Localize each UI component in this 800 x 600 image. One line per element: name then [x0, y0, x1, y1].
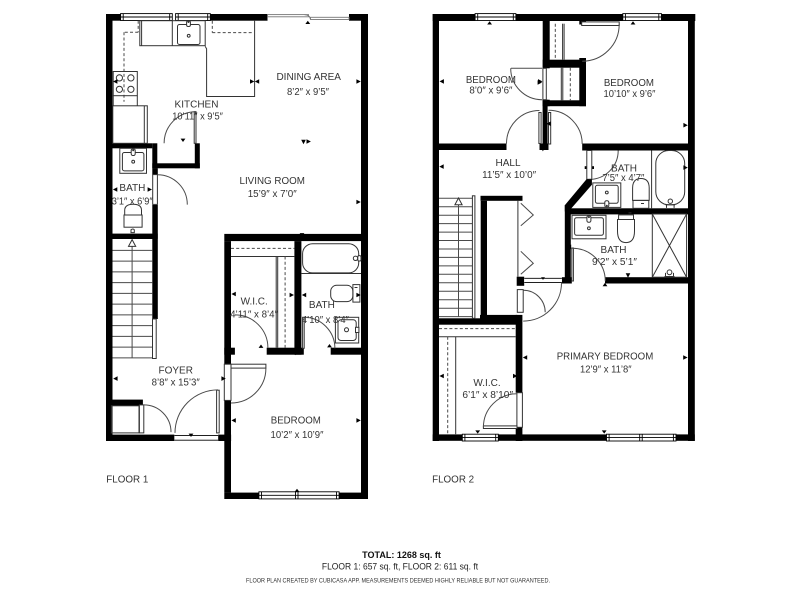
svg-text:HALL: HALL	[495, 158, 520, 169]
svg-text:7’5″ x 4’7″: 7’5″ x 4’7″	[602, 173, 644, 184]
svg-text:PRIMARY BEDROOM: PRIMARY BEDROOM	[557, 351, 654, 362]
svg-text:9’2″ x 5’1″: 9’2″ x 5’1″	[592, 257, 637, 268]
svg-text:FLOOR PLAN CREATED BY CUBICASA: FLOOR PLAN CREATED BY CUBICASA APP. MEAS…	[246, 578, 550, 585]
svg-text:BATH: BATH	[309, 300, 335, 311]
svg-text:KITCHEN: KITCHEN	[175, 100, 219, 111]
svg-text:FOYER: FOYER	[158, 365, 192, 376]
svg-text:10’11″ x 9’5″: 10’11″ x 9’5″	[172, 112, 223, 123]
svg-text:BATH: BATH	[601, 245, 627, 256]
svg-text:FLOOR 1: 657 sq. ft, FLOOR 2:: FLOOR 1: 657 sq. ft, FLOOR 2: 611 sq. ft	[322, 561, 479, 571]
svg-text:8’8″ x 15’3″: 8’8″ x 15’3″	[152, 378, 201, 389]
svg-text:4’11″ x 8’4″: 4’11″ x 8’4″	[230, 309, 278, 320]
svg-text:10’10″ x 9’6″: 10’10″ x 9’6″	[604, 89, 656, 100]
svg-text:BEDROOM: BEDROOM	[271, 416, 321, 427]
svg-text:15’9″ x 7’0″: 15’9″ x 7’0″	[248, 189, 297, 200]
svg-text:BATH: BATH	[119, 183, 145, 194]
svg-text:DINING AREA: DINING AREA	[276, 72, 341, 83]
svg-text:12’9″ x 11’8″: 12’9″ x 11’8″	[580, 364, 632, 375]
svg-text:FLOOR 2: FLOOR 2	[432, 475, 474, 486]
svg-text:W.I.C.: W.I.C.	[241, 296, 268, 307]
svg-text:3’1″ x 6’9″: 3’1″ x 6’9″	[112, 197, 153, 208]
svg-text:10’2″ x 10’9″: 10’2″ x 10’9″	[271, 430, 324, 441]
svg-text:FLOOR 1: FLOOR 1	[106, 475, 148, 486]
svg-text:W.I.C.: W.I.C.	[473, 378, 500, 389]
svg-text:6’1″ x 8’10″: 6’1″ x 8’10″	[462, 390, 513, 401]
svg-text:8’0″ x 9’6″: 8’0″ x 9’6″	[469, 86, 513, 97]
svg-text:LIVING ROOM: LIVING ROOM	[240, 176, 305, 187]
svg-text:TOTAL: 1268 sq. ft: TOTAL: 1268 sq. ft	[362, 550, 441, 560]
svg-text:BEDROOM: BEDROOM	[604, 78, 654, 89]
svg-text:4’10″ x 8’4″: 4’10″ x 8’4″	[302, 315, 349, 326]
svg-text:BEDROOM: BEDROOM	[466, 75, 516, 86]
svg-text:8’2″ x 9’5″: 8’2″ x 9’5″	[287, 87, 329, 98]
svg-text:11’5″ x 10’0″: 11’5″ x 10’0″	[482, 170, 536, 181]
